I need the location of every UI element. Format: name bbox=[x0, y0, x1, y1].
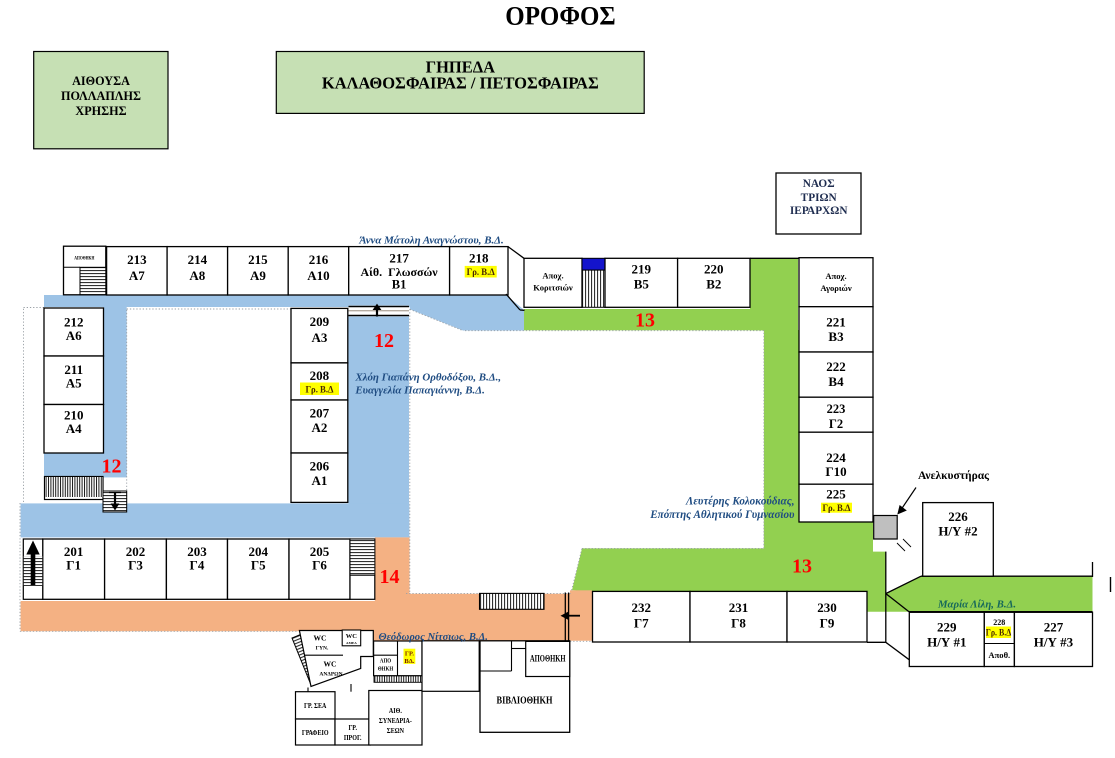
svg-text:215: 215 bbox=[248, 252, 268, 267]
svg-text:14: 14 bbox=[380, 566, 400, 588]
svg-text:231: 231 bbox=[729, 600, 749, 615]
svg-text:Α5: Α5 bbox=[66, 376, 82, 391]
svg-text:Γ9: Γ9 bbox=[820, 616, 835, 631]
svg-text:Γρ. Β.Δ: Γρ. Β.Δ bbox=[305, 384, 333, 394]
svg-text:ΠΟΛΛΑΠΛΗΣ: ΠΟΛΛΑΠΛΗΣ bbox=[61, 89, 141, 103]
svg-text:ΓΡ.: ΓΡ. bbox=[348, 725, 357, 733]
svg-text:Α4: Α4 bbox=[66, 421, 82, 436]
svg-text:225: 225 bbox=[826, 486, 846, 501]
svg-text:Αγοριών: Αγοριών bbox=[820, 283, 852, 293]
svg-text:228: 228 bbox=[993, 618, 1005, 627]
svg-text:202: 202 bbox=[126, 544, 146, 559]
svg-text:Επόπτης Αθλητικού Γυμνασίου: Επόπτης Αθλητικού Γυμνασίου bbox=[649, 509, 795, 521]
svg-text:Γ6: Γ6 bbox=[312, 558, 327, 573]
svg-text:207: 207 bbox=[310, 406, 330, 421]
svg-text:Γ7: Γ7 bbox=[634, 616, 649, 631]
svg-text:208: 208 bbox=[310, 368, 330, 383]
svg-text:ΑΜΕΑ: ΑΜΕΑ bbox=[346, 641, 357, 645]
svg-text:223: 223 bbox=[827, 402, 846, 416]
svg-text:Γ3: Γ3 bbox=[128, 558, 143, 573]
svg-text:Β5: Β5 bbox=[634, 276, 650, 291]
svg-text:ΓΥΝ.: ΓΥΝ. bbox=[316, 646, 329, 652]
svg-text:Β4: Β4 bbox=[828, 374, 844, 389]
svg-text:ΟΡΟΦΟΣ: ΟΡΟΦΟΣ bbox=[505, 1, 615, 31]
svg-text:Λευτέρης Κολοκούδιας,: Λευτέρης Κολοκούδιας, bbox=[685, 496, 795, 508]
svg-text:203: 203 bbox=[187, 544, 207, 559]
svg-text:201: 201 bbox=[64, 544, 84, 559]
svg-text:ΤΡΙΩΝ: ΤΡΙΩΝ bbox=[801, 192, 838, 204]
svg-text:Β3: Β3 bbox=[828, 329, 844, 344]
svg-text:204: 204 bbox=[249, 544, 269, 559]
svg-text:Γ2: Γ2 bbox=[829, 417, 843, 431]
svg-text:Α1: Α1 bbox=[311, 473, 327, 488]
svg-text:Β1: Β1 bbox=[392, 278, 407, 292]
svg-text:232: 232 bbox=[632, 600, 652, 615]
svg-text:Κοριτσιών: Κοριτσιών bbox=[533, 283, 573, 293]
svg-text:227: 227 bbox=[1044, 619, 1064, 634]
svg-text:226: 226 bbox=[948, 509, 968, 524]
svg-text:Αποχ.: Αποχ. bbox=[825, 271, 846, 281]
svg-text:ΒΔ.: ΒΔ. bbox=[404, 658, 414, 665]
svg-text:Η/Υ #2: Η/Υ #2 bbox=[938, 524, 977, 539]
svg-text:ΑΙΘΟΥΣΑ: ΑΙΘΟΥΣΑ bbox=[72, 74, 130, 88]
svg-text:12: 12 bbox=[374, 330, 394, 352]
svg-text:221: 221 bbox=[826, 315, 846, 330]
svg-text:ΓΡΑΦΕΙΟ: ΓΡΑΦΕΙΟ bbox=[302, 730, 329, 738]
svg-text:205: 205 bbox=[310, 544, 330, 559]
svg-text:ΝΑΟΣ: ΝΑΟΣ bbox=[803, 178, 835, 190]
svg-text:Α2: Α2 bbox=[311, 420, 327, 435]
svg-text:Η/Υ #3: Η/Υ #3 bbox=[1034, 634, 1074, 649]
svg-text:ΑΠΟΘΗΚΗ: ΑΠΟΘΗΚΗ bbox=[530, 653, 566, 663]
svg-text:Ανελκυστήρας: Ανελκυστήρας bbox=[918, 470, 989, 482]
svg-text:Αποχ.: Αποχ. bbox=[542, 271, 563, 281]
svg-text:ΑΠΟΘΗΚΗ: ΑΠΟΘΗΚΗ bbox=[74, 255, 95, 261]
svg-text:ΓΡ. ΣΕΑ: ΓΡ. ΣΕΑ bbox=[304, 703, 327, 711]
svg-text:Χλόη Γιαπάνη Ορθοδόξου, Β.Δ.,: Χλόη Γιαπάνη Ορθοδόξου, Β.Δ., bbox=[354, 371, 501, 383]
svg-text:WC: WC bbox=[314, 634, 327, 643]
svg-text:ΙΕΡΑΡΧΩΝ: ΙΕΡΑΡΧΩΝ bbox=[790, 205, 848, 217]
svg-text:206: 206 bbox=[310, 459, 330, 474]
svg-text:Αποθ.: Αποθ. bbox=[988, 650, 1010, 660]
svg-text:ΑΝΔΡΩΝ: ΑΝΔΡΩΝ bbox=[319, 672, 342, 678]
svg-text:Μαρία Λίλη, Β.Δ.: Μαρία Λίλη, Β.Δ. bbox=[937, 599, 1016, 611]
svg-text:WC: WC bbox=[346, 633, 358, 640]
svg-text:209: 209 bbox=[310, 314, 330, 329]
svg-text:Ευαγγελία Παπαγιάννη, Β.Δ.: Ευαγγελία Παπαγιάννη, Β.Δ. bbox=[354, 385, 484, 397]
svg-text:Γ8: Γ8 bbox=[731, 616, 746, 631]
svg-text:Α7: Α7 bbox=[129, 268, 145, 283]
svg-text:Γ1: Γ1 bbox=[66, 558, 81, 573]
svg-text:WC: WC bbox=[324, 660, 337, 669]
svg-text:220: 220 bbox=[704, 262, 724, 277]
svg-text:Α6: Α6 bbox=[66, 328, 82, 343]
svg-text:214: 214 bbox=[188, 252, 208, 267]
svg-text:219: 219 bbox=[632, 262, 652, 277]
svg-text:Α8: Α8 bbox=[189, 268, 205, 283]
svg-text:ΒΙΒΛΙΟΘΗΚΗ: ΒΙΒΛΙΟΘΗΚΗ bbox=[497, 695, 553, 707]
svg-text:ΧΡΗΣΗΣ: ΧΡΗΣΗΣ bbox=[75, 104, 126, 118]
svg-text:Γρ. Β.Δ: Γρ. Β.Δ bbox=[822, 502, 850, 512]
svg-text:Η/Υ #1: Η/Υ #1 bbox=[927, 634, 966, 649]
svg-text:Άννα Μάτολη Αναγνώστου, Β.Δ.: Άννα Μάτολη Αναγνώστου, Β.Δ. bbox=[358, 235, 504, 247]
svg-text:224: 224 bbox=[826, 450, 846, 465]
svg-text:230: 230 bbox=[817, 600, 837, 615]
svg-text:ΣΕΩΝ: ΣΕΩΝ bbox=[387, 728, 404, 736]
svg-text:ΠΡΟΓ.: ΠΡΟΓ. bbox=[344, 735, 362, 743]
svg-text:229: 229 bbox=[937, 619, 957, 634]
svg-text:213: 213 bbox=[127, 252, 147, 267]
svg-text:222: 222 bbox=[826, 359, 846, 374]
svg-text:ΓΡ.: ΓΡ. bbox=[405, 651, 415, 658]
svg-text:13: 13 bbox=[635, 310, 655, 332]
svg-text:Α9: Α9 bbox=[250, 268, 266, 283]
svg-text:13: 13 bbox=[792, 556, 812, 578]
svg-text:Θεόδωρος Νίτσιως, Β.Δ.: Θεόδωρος Νίτσιως, Β.Δ. bbox=[379, 632, 488, 643]
svg-text:ΚΑΛΑΘΟΣΦΑΙΡΑΣ / ΠΕΤΟΣΦΑΙΡΑΣ: ΚΑΛΑΘΟΣΦΑΙΡΑΣ / ΠΕΤΟΣΦΑΙΡΑΣ bbox=[322, 73, 599, 92]
svg-text:Γ5: Γ5 bbox=[251, 558, 266, 573]
svg-text:218: 218 bbox=[469, 251, 489, 266]
svg-text:216: 216 bbox=[309, 252, 329, 267]
svg-text:Β2: Β2 bbox=[706, 276, 721, 291]
svg-text:12: 12 bbox=[102, 456, 122, 478]
svg-text:Γ4: Γ4 bbox=[190, 558, 205, 573]
svg-text:ΣΥΝΕΔΡΙΑ-: ΣΥΝΕΔΡΙΑ- bbox=[379, 718, 412, 726]
svg-text:Γρ. Β.Δ: Γρ. Β.Δ bbox=[986, 627, 1012, 638]
svg-text:ΑΠΟ: ΑΠΟ bbox=[380, 658, 391, 664]
svg-text:ΑΙΘ.: ΑΙΘ. bbox=[389, 708, 402, 716]
svg-text:Α10: Α10 bbox=[307, 268, 329, 283]
svg-text:Γρ. Β.Δ: Γρ. Β.Δ bbox=[467, 267, 495, 277]
svg-text:ΘΗΚΗ: ΘΗΚΗ bbox=[378, 666, 394, 672]
svg-text:Α3: Α3 bbox=[311, 330, 327, 345]
svg-text:Γ10: Γ10 bbox=[825, 464, 846, 479]
svg-text:217: 217 bbox=[389, 250, 409, 265]
